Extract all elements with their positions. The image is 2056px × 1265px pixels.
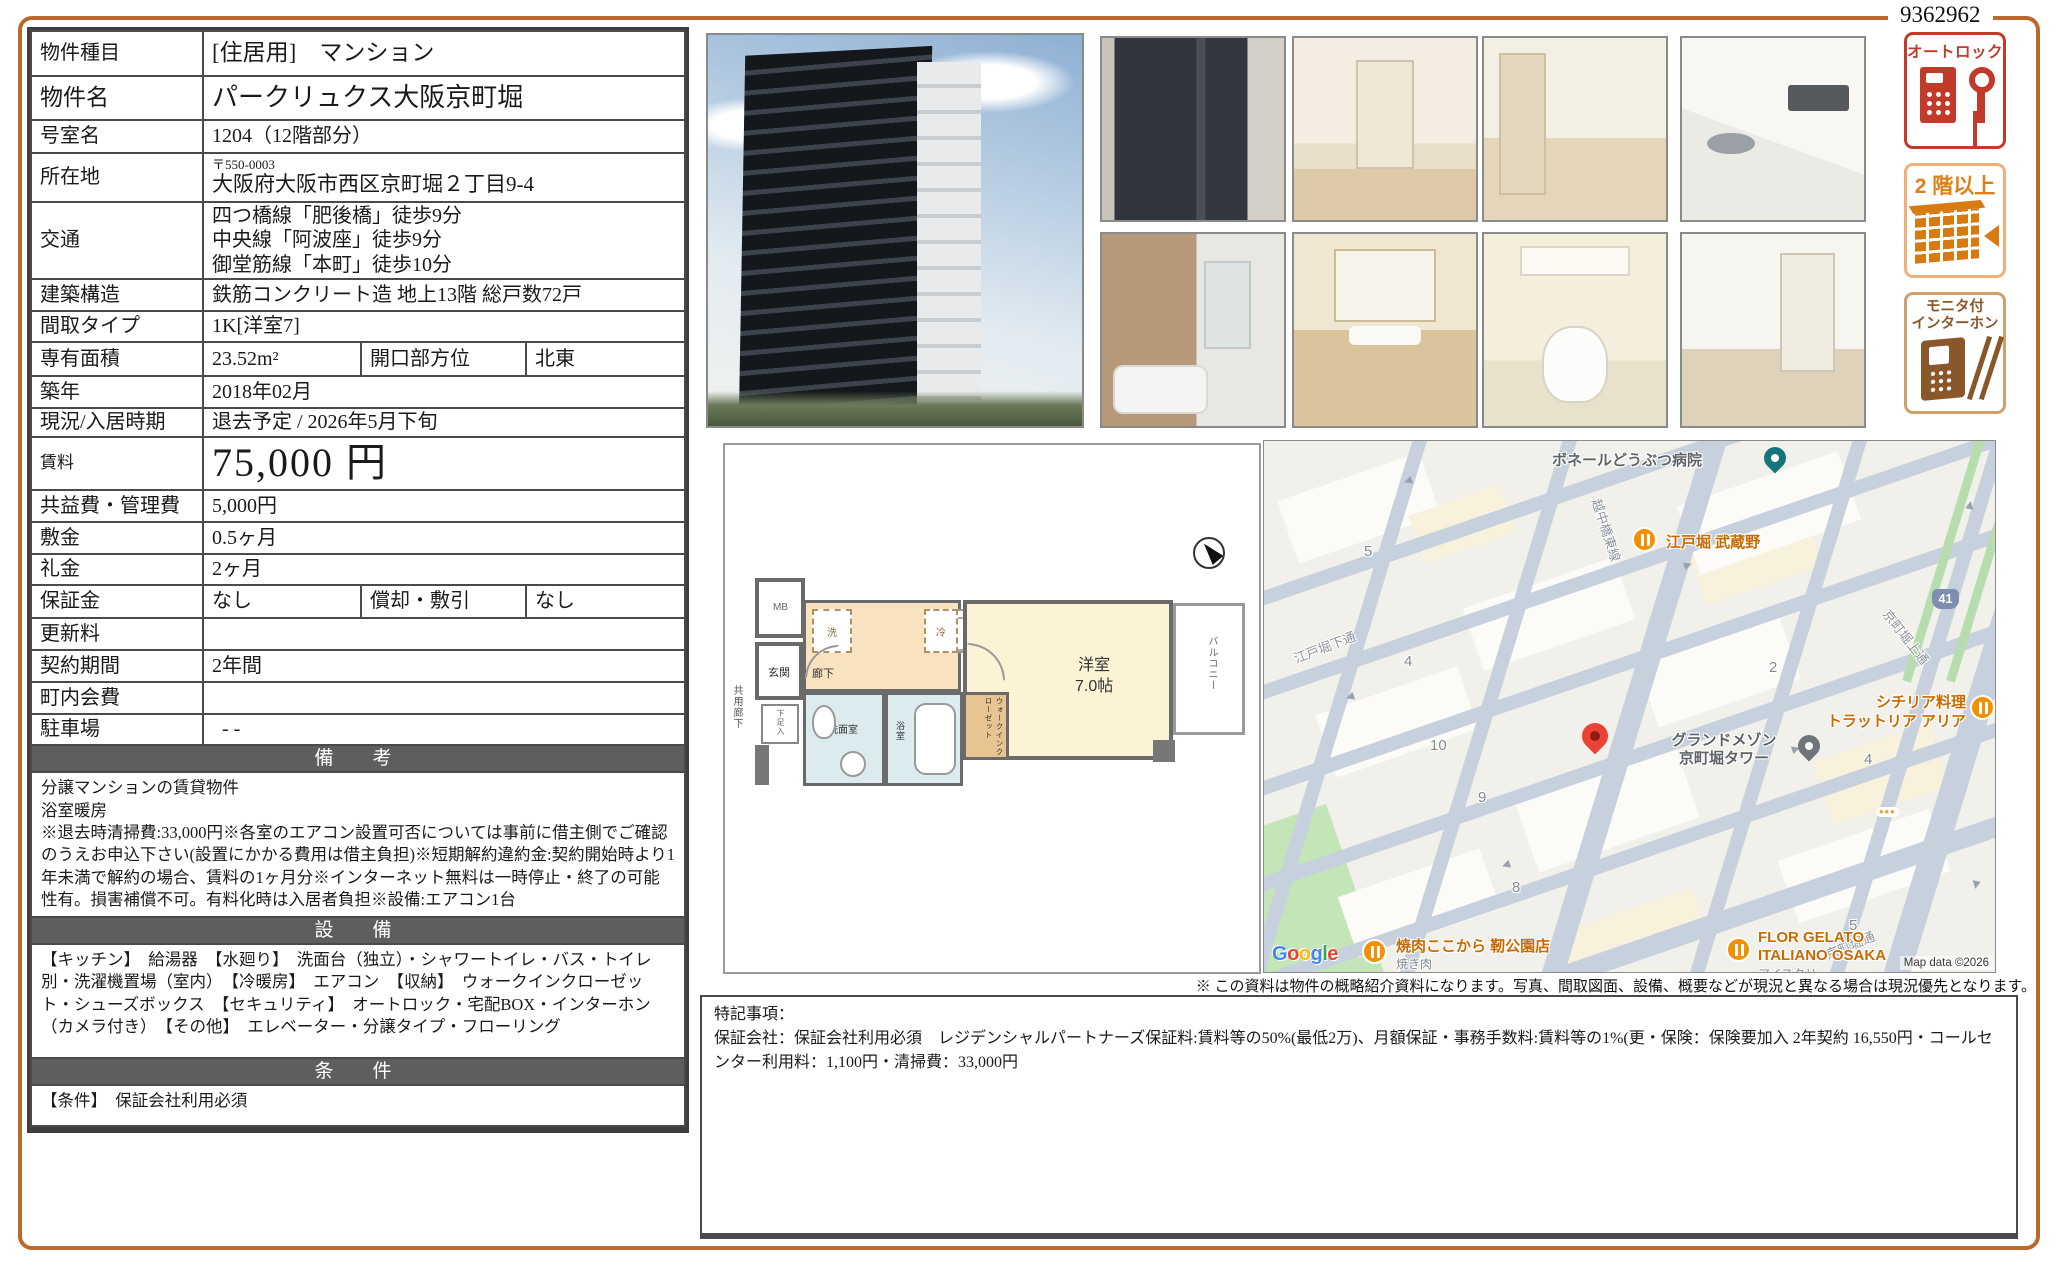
map-dots-marker: ••• [1876, 807, 1899, 817]
row-label: 築年 [31, 376, 203, 408]
table-row: 賃料 75,000 円 [31, 437, 685, 490]
decor-stripe [1979, 336, 2004, 400]
row-label: 更新料 [31, 618, 203, 650]
google-logo: Google [1272, 943, 1338, 966]
section-header-row: 備 考 [31, 745, 685, 772]
property-flyer-page: { "page": { "doc_number": "9362962", "di… [0, 0, 2056, 1265]
entrance-label: 玄関 [768, 664, 790, 680]
property-table-grid: 物件種目 [住居用] マンション 物件名 パークリュクス大阪京町堀 号室名 12… [30, 30, 686, 1127]
restaurant-icon [1362, 939, 1387, 964]
restaurant-icon [1632, 527, 1657, 552]
road-arrow [1501, 860, 1511, 870]
left-arrow-icon [1973, 225, 1999, 247]
row-value: なし [203, 585, 361, 618]
row-label: 償却・敷引 [361, 585, 526, 618]
shoe-box: 下足入 [761, 704, 799, 744]
intercom-monitor-icon [1921, 337, 1965, 401]
equipment-header: 設 備 [31, 917, 685, 944]
rent-value: 75,000 円 [203, 437, 685, 490]
block-number: 2 [1769, 659, 1777, 676]
row-value: 5,000円 [203, 490, 685, 522]
hall-door-shape [1356, 60, 1414, 169]
row-value: なし [526, 585, 685, 618]
table-row: 現況/入居時期 退去予定 / 2026年5月下旬 [31, 408, 685, 437]
street-label: 越中橋東線 [1588, 496, 1626, 564]
google-letter: g [1311, 943, 1323, 965]
row-label: 現況/入居時期 [31, 408, 203, 437]
table-row: 物件種目 [住居用] マンション [31, 31, 685, 76]
row-label: 交通 [31, 202, 203, 279]
map-disclaimer: ※ この資料は物件の概略紹介資料になります。写真、間取図面、設備、概要などが現況… [700, 975, 2036, 996]
row-label: 号室名 [31, 120, 203, 153]
bathroom-label: 浴室 [894, 721, 907, 741]
toilet-cabinet-shape [1520, 246, 1629, 277]
table-row: 町内会費 [31, 682, 685, 714]
balcony: バルコニー [1173, 603, 1245, 735]
tower-pin-icon [1793, 730, 1824, 761]
restaurant-icon [1726, 937, 1751, 962]
block-number: 8 [1512, 879, 1520, 896]
google-letter: o [1299, 943, 1311, 965]
table-row: 保証金 なし 償却・敷引 なし [31, 585, 685, 618]
photo-toilet [1482, 232, 1668, 428]
stove-shape [1788, 85, 1850, 110]
poi-gelato-sub: アイスクリ [1758, 965, 1817, 973]
row-value: 四つ橋線「肥後橋」徒歩9分 中央線「阿波座」徒歩9分 御堂筋線「本町」徒歩10分 [203, 202, 685, 279]
road-arrow [1345, 692, 1355, 702]
row-label: 共益費・管理費 [31, 490, 203, 522]
road-arrow [1971, 880, 1980, 889]
block-number: 9 [1478, 789, 1486, 806]
pillar [755, 745, 769, 785]
wash-bowl-shape [1349, 326, 1422, 345]
row-value: 1204（12階部分） [203, 120, 685, 153]
block-number: 4 [1864, 751, 1872, 768]
table-row: 物件名 パークリュクス大阪京町堀 [31, 76, 685, 120]
sink-shape [1707, 133, 1754, 155]
row-label: 物件種目 [31, 31, 203, 76]
table-row: 契約期間 2年間 [31, 650, 685, 682]
common-corridor-label: 共用廊下 [729, 685, 744, 729]
table-row: 築年 2018年02月 [31, 376, 685, 408]
section-header-row: 設 備 [31, 917, 685, 944]
building-exterior-image [708, 35, 1082, 426]
row-label: 建築構造 [31, 279, 203, 311]
row-label: 保証金 [31, 585, 203, 618]
bath-mirror-shape [1204, 261, 1251, 349]
section-body-row: 【キッチン】 給湯器 【水廻り】 洗面台（独立）・シャワートイレ・バス・トイレ別… [31, 944, 685, 1058]
entrance: 玄関 [755, 642, 803, 700]
autolock-icon [1907, 67, 2003, 131]
map-attribution: Map data ©2026 [1900, 956, 1993, 970]
row-value [203, 618, 685, 650]
poi-gelato-label-2: ITALIANO OSAKA [1758, 947, 1886, 964]
table-row: 建築構造 鉄筋コンクリート造 地上13階 総戸数72戸 [31, 279, 685, 311]
meter-box: MB [755, 578, 805, 638]
route-shield: 41 [1932, 589, 1959, 609]
table-row: 号室名 1204（12階部分） [31, 120, 685, 153]
section-body-row: 分譲マンションの賃貸物件 浴室暖房 ※退去時清掃費:33,000円※各室のエアコ… [31, 772, 685, 917]
greenery-shape [708, 391, 1082, 426]
row-value: 2018年02月 [203, 376, 685, 408]
poi-musashino-label: 江戸堀 武蔵野 [1666, 531, 1760, 552]
row-value: 23.52m² [203, 342, 361, 376]
block-number: 10 [1430, 737, 1447, 754]
block-number: 5 [1364, 543, 1372, 560]
block-number: 4 [1404, 653, 1412, 670]
badge-autolock-label: オートロック [1907, 40, 2003, 62]
mb-label: MB [773, 602, 788, 613]
row-value: 1K[洋室7] [203, 311, 685, 342]
property-location-pin [1577, 718, 1614, 755]
photo-entrance-hall [1292, 36, 1478, 222]
row-value: パークリュクス大阪京町堀 [203, 76, 685, 120]
photo-building-exterior [706, 33, 1084, 428]
western-room-label: 洋室 7.0帖 [1075, 656, 1113, 698]
table-row: 共益費・管理費 5,000円 [31, 490, 685, 522]
photo-bathroom [1100, 232, 1286, 428]
row-label: 所在地 [31, 153, 203, 202]
table-row: 更新料 [31, 618, 685, 650]
fridge-label: 冷 [936, 624, 946, 639]
badge-autolock: オートロック [1904, 32, 2006, 149]
intercom-panel-icon [1920, 67, 1956, 123]
row-label: 専有面積 [31, 342, 203, 376]
row-value: 北東 [526, 342, 685, 376]
badge-monitor-intercom: モニタ付 インターホン [1904, 292, 2006, 414]
section-body-row: 【条件】 保証会社利用必須 [31, 1085, 685, 1126]
table-row: 交通 四つ橋線「肥後橋」徒歩9分 中央線「阿波座」徒歩9分 御堂筋線「本町」徒歩… [31, 202, 685, 279]
building-icon [1915, 208, 1979, 264]
vanity-mirror-shape [1334, 249, 1436, 322]
address: 大阪府大阪市西区京町堀２丁目9-4 [212, 172, 676, 197]
special-notes-box: 特記事項： 保証会社：保証会社利用必須 レジデンシャルパートナーズ保証料:賃料等… [700, 995, 2018, 1239]
photo-kitchen [1680, 36, 1866, 222]
remarks-body: 分譲マンションの賃貸物件 浴室暖房 ※退去時清掃費:33,000円※各室のエアコ… [31, 772, 685, 917]
poi-yakiniku-label: 焼肉ここから 靭公園店 [1396, 935, 1550, 956]
table-row: 間取タイプ 1K[洋室7] [31, 311, 685, 342]
conditions-body: 【条件】 保証会社利用必須 [31, 1085, 685, 1126]
google-letter: e [1327, 943, 1338, 965]
walk-in-closet: ウォークインクローゼット [963, 692, 1009, 760]
row-value [203, 682, 685, 714]
section-header-row: 条 件 [31, 1058, 685, 1085]
row-value: [住居用] マンション [203, 31, 685, 76]
row-value: 鉄筋コンクリート造 地上13階 総戸数72戸 [203, 279, 685, 311]
postal-code: 〒550-0003 [212, 158, 676, 172]
building-floors-icon [1907, 205, 2003, 269]
row-label: 町内会費 [31, 682, 203, 714]
table-row: 専有面積 23.52m² 開口部方位 北東 [31, 342, 685, 376]
photo-vanity [1292, 232, 1478, 428]
washroom: 洗面室 [803, 692, 885, 786]
poi-hospital-label: ボネールどうぶつ病院 [1552, 449, 1702, 470]
property-table: 物件種目 [住居用] マンション 物件名 パークリュクス大阪京町堀 号室名 12… [27, 27, 689, 1133]
photo-western-room [1680, 232, 1866, 428]
building-sidewall-shape [917, 62, 981, 418]
row-value: 退去予定 / 2026年5月下旬 [203, 408, 685, 437]
floor-plan: 共用廊下 MB 玄関 下足入 廊下 洗 冷 洗面室 浴室 洋室 7.0帖 ウォー… [723, 443, 1261, 974]
row-label: 礼金 [31, 554, 203, 585]
photo-corridor [1482, 36, 1668, 222]
bathtub-shape [1113, 365, 1208, 415]
row-label: 開口部方位 [361, 342, 526, 376]
shoe-box-label: 下足入 [775, 709, 786, 736]
location-map: 越中橋東線 江戸堀下通 京町堀上通 京町堀通 ボネールどうぶつ病院 江戸堀 武蔵… [1263, 440, 1996, 973]
bathtub-shape [914, 703, 956, 775]
row-label: 間取タイプ [31, 311, 203, 342]
block-number: 5 [1849, 917, 1857, 934]
row-label: 駐車場 [31, 714, 203, 745]
row-value: - - [203, 714, 685, 745]
photo-entrance-door [1100, 36, 1286, 222]
balcony-label: バルコニー [1204, 636, 1219, 691]
restaurant-icon [1970, 695, 1995, 720]
compass-needle [1199, 539, 1224, 565]
compass-icon [1193, 537, 1225, 569]
poi-trattoria-label-1: シチリア料理 [1804, 691, 1966, 712]
equipment-body: 【キッチン】 給湯器 【水廻り】 洗面台（独立）・シャワートイレ・バス・トイレ別… [31, 944, 685, 1058]
poi-yakiniku-sub: 焼き肉 [1396, 955, 1432, 972]
table-row: 礼金 2ヶ月 [31, 554, 685, 585]
room-door-shape [1780, 253, 1835, 372]
table-row: 所在地 〒550-0003 大阪府大阪市西区京町堀２丁目9-4 [31, 153, 685, 202]
row-label: 物件名 [31, 76, 203, 120]
row-label: 賃料 [31, 437, 203, 490]
row-label: 契約期間 [31, 650, 203, 682]
corridor-cabinet-shape [1499, 53, 1546, 195]
monitor-intercom-icon [1907, 337, 2003, 401]
google-letter: o [1287, 943, 1299, 965]
toilet-shape [1542, 326, 1608, 403]
pillar [1153, 740, 1175, 762]
google-letter: G [1272, 943, 1287, 965]
road-arrow [1965, 500, 1974, 509]
row-value: 〒550-0003 大阪府大阪市西区京町堀２丁目9-4 [203, 153, 685, 202]
poi-grandmaison-label-2: 京町堀タワー [1656, 747, 1792, 768]
row-value: 0.5ヶ月 [203, 522, 685, 554]
badge-second-floor-or-higher: 2 階以上 [1904, 163, 2006, 278]
table-row: 敷金 0.5ヶ月 [31, 522, 685, 554]
bathroom: 浴室 [885, 692, 963, 786]
washer-label: 洗 [827, 624, 837, 639]
row-value: 2年間 [203, 650, 685, 682]
key-icon [1966, 67, 1996, 125]
table-row: 駐車場 - - [31, 714, 685, 745]
wic-label: ウォークインクローゼット [983, 697, 1005, 757]
poi-trattoria-label-2: トラットリア アリア [1804, 710, 1966, 731]
sink-shape [840, 751, 866, 777]
row-label: 敷金 [31, 522, 203, 554]
building-tower-shape [738, 46, 931, 424]
badge-monitor-intercom-label: モニタ付 インターホン [1907, 299, 2003, 332]
badge-second-floor-label: 2 階以上 [1907, 170, 2003, 200]
remarks-header: 備 考 [31, 745, 685, 772]
fridge-space: 冷 [924, 609, 958, 653]
conditions-header: 条 件 [31, 1058, 685, 1085]
toilet-shape [812, 705, 836, 739]
row-value: 2ヶ月 [203, 554, 685, 585]
document-number: 9362962 [1888, 2, 1993, 28]
